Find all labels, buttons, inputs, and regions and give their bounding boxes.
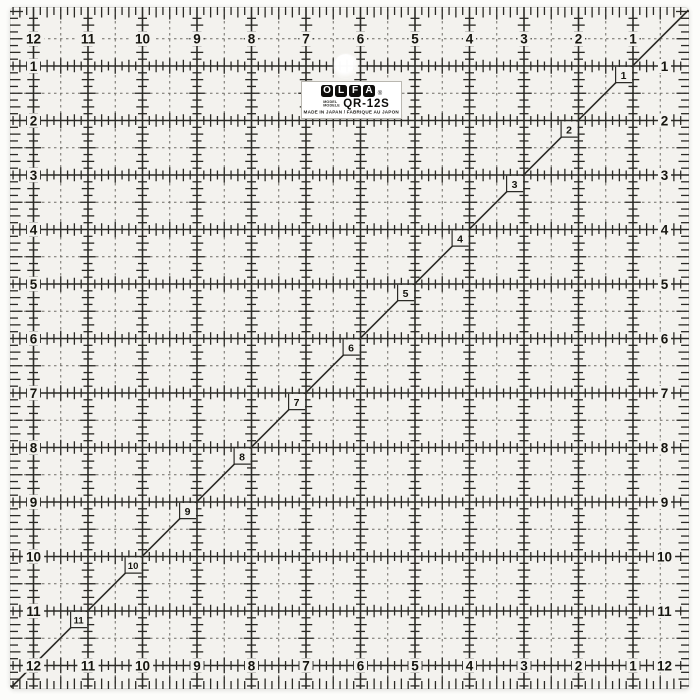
scale-number-right: 12 [657, 658, 672, 673]
scale-number-right: 7 [661, 386, 669, 401]
scale-number-right: 9 [661, 495, 669, 510]
scale-number-bottom: 10 [135, 658, 150, 673]
scale-number-right: 6 [661, 331, 669, 346]
scale-number-diagonal: 1 [621, 70, 627, 82]
product-photo: 1211109876543211211109876543211234567891… [0, 0, 700, 700]
scale-number-right: 2 [661, 113, 669, 128]
scale-number-left: 7 [30, 386, 38, 401]
scale-number-right: 3 [661, 168, 669, 183]
scale-number-right: 8 [661, 440, 669, 455]
scale-number-diagonal: 8 [239, 451, 245, 463]
model-caption-line: MODELE [324, 104, 341, 108]
scale-number-left: 11 [26, 604, 41, 619]
logo-letter-tile: A [363, 85, 376, 98]
scale-number-top: 6 [357, 32, 365, 47]
scale-number-diagonal: 11 [74, 616, 85, 627]
scale-number-left: 5 [30, 277, 38, 292]
scale-number-top: 7 [302, 32, 310, 47]
scale-number-diagonal: 6 [348, 342, 354, 354]
scale-number-diagonal: 4 [457, 233, 463, 245]
scale-number-diagonal: 7 [294, 397, 300, 409]
scale-number-top: 12 [26, 32, 41, 47]
model-caption: MODEL MODELE [324, 100, 341, 107]
scale-number-left: 4 [30, 222, 38, 237]
logo-letter-tile: F [349, 85, 362, 98]
scale-number-left: 8 [30, 440, 38, 455]
scale-number-top: 9 [193, 32, 201, 47]
scale-number-bottom: 4 [466, 658, 474, 673]
scale-number-right: 11 [657, 604, 672, 619]
scale-number-left: 9 [30, 495, 38, 510]
scale-number-right: 5 [661, 277, 669, 292]
scale-number-top: 2 [575, 32, 583, 47]
scale-number-bottom: 7 [302, 658, 310, 673]
origin-text: MADE IN JAPAN / FABRIQUE AU JAPON [304, 110, 399, 115]
logo-letter-tile: O [321, 85, 334, 98]
scale-number-diagonal: 10 [128, 561, 139, 572]
scale-number-bottom: 1 [629, 658, 637, 673]
hanging-hole [334, 54, 358, 78]
scale-number-left: 2 [30, 113, 38, 128]
scale-number-bottom: 11 [81, 658, 96, 673]
scale-number-top: 5 [411, 32, 419, 47]
scale-number-diagonal: 9 [185, 506, 191, 518]
scale-number-top: 10 [135, 32, 150, 47]
model-caption-line: MODEL [324, 100, 341, 104]
scale-number-bottom: 2 [575, 658, 583, 673]
model-row: MODEL MODELE QR-12S [313, 98, 389, 109]
scale-number-bottom: 3 [520, 658, 528, 673]
scale-number-diagonal: 2 [566, 124, 572, 136]
scale-number-top: 1 [629, 32, 637, 47]
scale-number-diagonal: 3 [512, 179, 518, 191]
scale-number-left: 3 [30, 168, 38, 183]
scale-number-bottom: 8 [248, 658, 256, 673]
scale-number-top: 8 [248, 32, 256, 47]
scale-number-diagonal: 5 [403, 288, 409, 300]
scale-number-top: 3 [520, 32, 528, 47]
scale-number-top: 4 [466, 32, 474, 47]
scale-number-right: 4 [661, 222, 669, 237]
brand-label: O L F A ® MODEL MODELE QR-12S MADE IN JA… [301, 81, 402, 119]
scale-number-top: 11 [81, 32, 96, 47]
model-number: QR-12S [343, 98, 389, 110]
scale-number-left: 1 [30, 59, 38, 74]
scale-number-bottom: 9 [193, 658, 201, 673]
scale-number-left: 6 [30, 331, 38, 346]
olfa-logo: O L F A ® [321, 84, 382, 97]
scale-number-bottom: 6 [357, 658, 365, 673]
scale-number-right: 1 [661, 59, 669, 74]
scale-number-left: 10 [26, 549, 41, 564]
scale-number-bottom: 5 [411, 658, 419, 673]
scale-number-right: 10 [657, 549, 672, 564]
logo-letter-tile: L [335, 85, 348, 98]
registered-trademark: ® [378, 91, 382, 97]
scale-number-bottom: 12 [26, 658, 41, 673]
